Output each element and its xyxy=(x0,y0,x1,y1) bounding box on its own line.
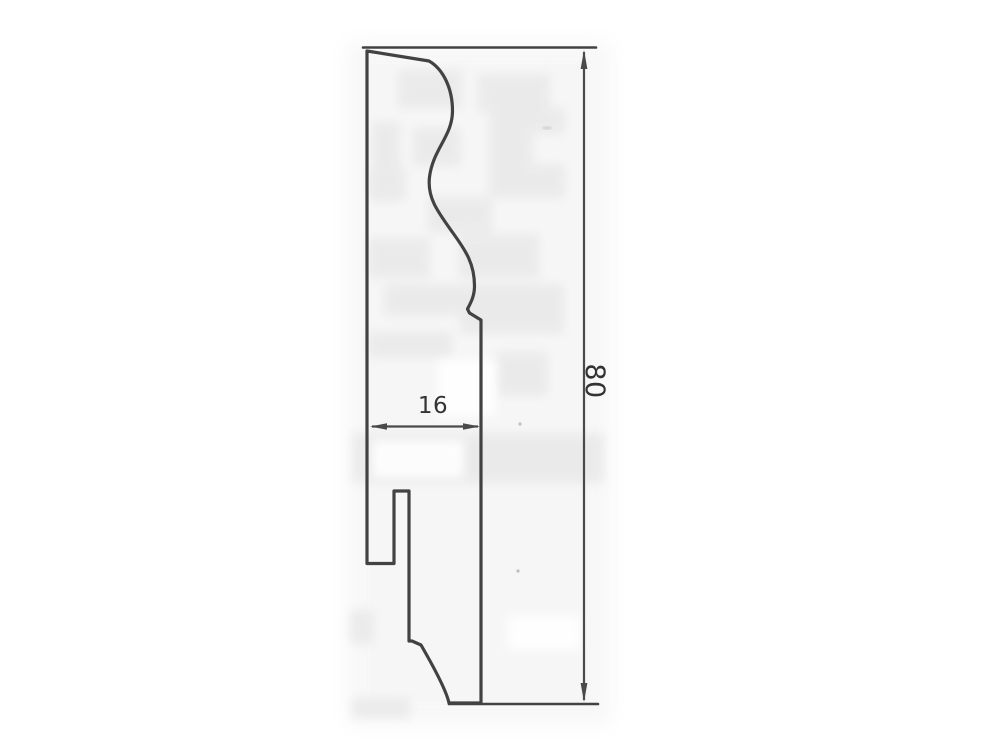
scan-stain xyxy=(478,74,550,112)
height-dimension-label: 80 xyxy=(579,363,610,398)
scan-highlight xyxy=(508,616,580,650)
scanned-drawing-page: 80 16 xyxy=(0,0,1000,750)
scan-highlight xyxy=(372,440,464,478)
scan-stain xyxy=(489,164,565,198)
scan-stain xyxy=(496,352,548,396)
scan-stain xyxy=(352,698,410,718)
scan-speck xyxy=(516,569,519,572)
scan-stain xyxy=(428,197,492,233)
width-dimension-label: 16 xyxy=(418,393,448,419)
technical-drawing-canvas: 80 16 xyxy=(0,0,1000,750)
scan-stain xyxy=(368,332,452,358)
scan-stain xyxy=(489,108,565,134)
scan-stain xyxy=(489,132,533,166)
scan-stain xyxy=(384,284,460,316)
scan-speck xyxy=(518,422,521,425)
scan-stain xyxy=(368,168,406,198)
scan-smudge xyxy=(542,126,552,130)
scan-stain xyxy=(368,238,430,278)
scan-stain xyxy=(350,610,374,644)
scan-stain xyxy=(413,128,461,166)
scan-stain xyxy=(459,234,539,278)
